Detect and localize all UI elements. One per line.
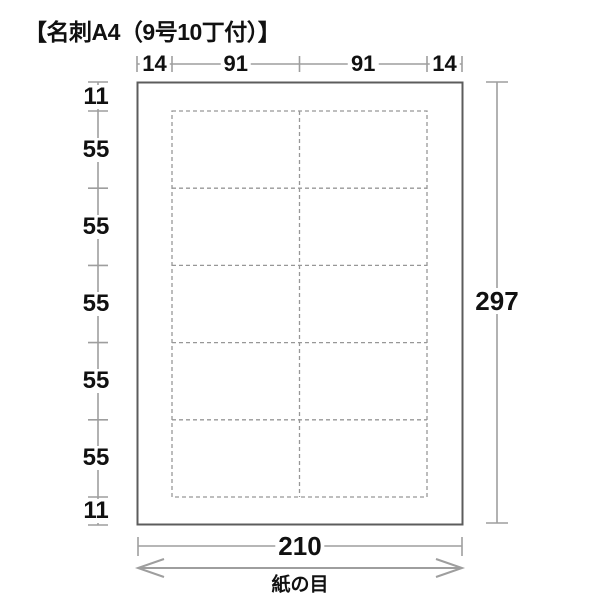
top-dim-label-margin-right: 14: [429, 53, 459, 75]
top-dim-label-card-width-2: 91: [348, 53, 378, 75]
left-dim-label-row-2: 55: [80, 215, 113, 239]
left-dim-label-margin-bottom: 11: [80, 499, 111, 523]
business-card-layout-diagram: 【名刺A4（9号10丁付）】 14 91 91 14 11 55 55 55 5…: [0, 0, 600, 600]
card-grid-dashed-lines: [172, 111, 427, 497]
left-dim-label-row-4: 55: [80, 369, 113, 393]
top-dimension-line: [137, 56, 462, 72]
diagram-title: 【名刺A4（9号10丁付）】: [24, 13, 280, 47]
grain-label: 紙の目: [265, 576, 334, 595]
left-dim-label-row-5: 55: [80, 446, 113, 470]
bottom-dim-label-210: 210: [275, 533, 324, 559]
right-dim-label-297: 297: [472, 288, 521, 314]
left-dim-label-row-3: 55: [80, 292, 113, 316]
left-dim-label-row-1: 55: [80, 138, 113, 162]
top-dim-label-margin-left: 14: [139, 53, 169, 75]
top-dim-label-card-width-1: 91: [221, 53, 251, 75]
left-dim-label-margin-top: 11: [80, 85, 111, 109]
